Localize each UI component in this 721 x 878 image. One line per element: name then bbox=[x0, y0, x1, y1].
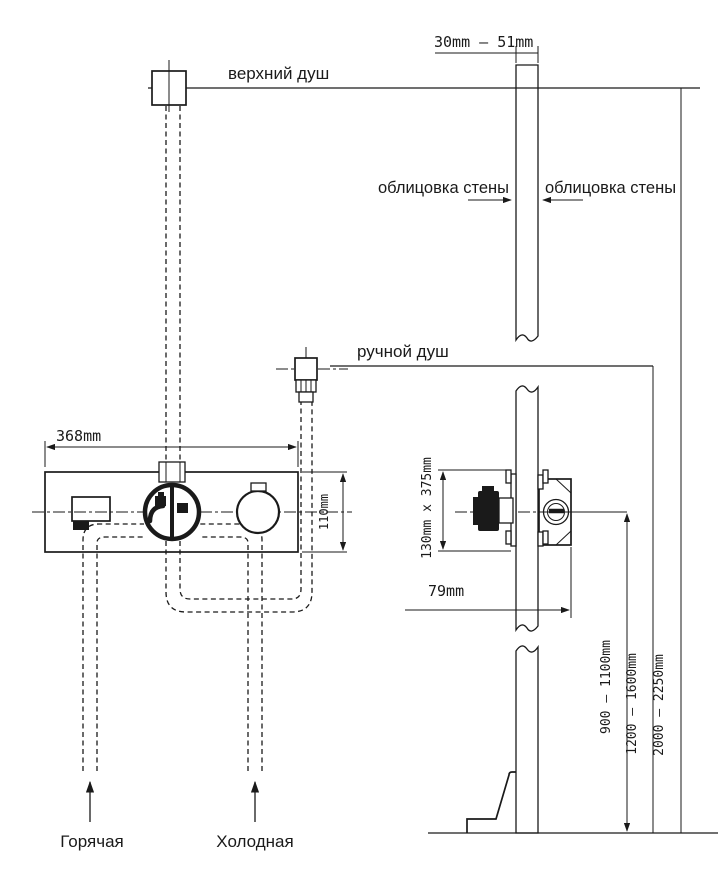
supply-callouts: Горячая Холодная bbox=[60, 782, 293, 851]
cold-pipe-run bbox=[200, 537, 248, 771]
mixer-front-view: 368mm 110m bbox=[32, 402, 352, 771]
overhead-shower: верхний душ bbox=[148, 60, 700, 462]
wall-section bbox=[516, 65, 538, 833]
recess-size-value: 130mm x 375mm bbox=[420, 457, 435, 559]
wall-thickness-dimension: 30mm — 51mm bbox=[434, 33, 538, 63]
mounting-stub-right bbox=[538, 475, 543, 489]
mixer-height-from-floor-dimension: 900 — 1100mm bbox=[563, 512, 627, 831]
hot-pipe-run bbox=[83, 524, 144, 771]
overhead-shower-height-value: 2000 — 2250mm bbox=[652, 654, 667, 756]
mounting-bolt bbox=[543, 470, 548, 483]
diverter-knob-icon bbox=[237, 491, 279, 533]
floor-and-tub bbox=[428, 772, 718, 833]
mixer-height-from-floor-value: 900 — 1100mm bbox=[599, 640, 614, 734]
hand-shower-height-value: 1200 — 1600mm bbox=[625, 653, 640, 755]
temperature-glyph bbox=[177, 503, 188, 513]
wall-cladding-left-label: облицовка стены bbox=[378, 179, 509, 197]
tub-edge-profile bbox=[467, 772, 516, 833]
mixer-width-dimension: 368mm bbox=[45, 427, 298, 467]
shower-installation-diagram: 30mm — 51mm верхний душ облицовка стены … bbox=[0, 0, 721, 878]
wall-thickness-value: 30mm — 51mm bbox=[434, 33, 533, 51]
mounting-bolt bbox=[543, 531, 548, 544]
mixer-width-value: 368mm bbox=[56, 427, 101, 445]
wall-cladding-callouts: облицовка стены облицовка стены bbox=[378, 179, 676, 200]
valve-body-back bbox=[473, 497, 478, 525]
wall-segment-upper bbox=[516, 65, 538, 341]
mounting-stub-right bbox=[538, 532, 543, 546]
hand-shower-label: ручной душ bbox=[357, 342, 449, 361]
recess-depth-value: 79mm bbox=[428, 582, 464, 600]
mixer-height-value: 110mm bbox=[317, 494, 331, 530]
hand-shower: ручной душ bbox=[276, 342, 653, 402]
mounting-bolt bbox=[506, 531, 511, 544]
spout-icon bbox=[72, 497, 110, 521]
overhead-shower-label: верхний душ bbox=[228, 64, 329, 83]
installation-diagram-page: { "labels": { "overhead_shower": "верхни… bbox=[0, 0, 721, 878]
hand-shower-height-dimension: 1200 — 1600mm bbox=[625, 366, 653, 833]
wall-cladding-right-label: облицовка стены bbox=[545, 179, 676, 197]
top-outlet-fitting bbox=[159, 462, 185, 482]
wall-segment-lower bbox=[516, 646, 538, 833]
mixer-side-view bbox=[455, 470, 624, 546]
hand-shower-outlet-icon bbox=[295, 358, 317, 380]
valve-body bbox=[478, 491, 499, 531]
valve-body-top bbox=[482, 486, 494, 491]
hot-supply-label: Горячая bbox=[60, 832, 124, 851]
hand-shower-nut bbox=[299, 392, 313, 402]
spout-aerator bbox=[73, 521, 89, 530]
wall-segment-middle bbox=[516, 386, 538, 631]
cold-pipe-run bbox=[200, 524, 262, 771]
tap-glyph-nub bbox=[158, 492, 164, 496]
valve-connector bbox=[499, 498, 513, 523]
cold-supply-label: Холодная bbox=[216, 832, 293, 851]
mounting-bolt bbox=[506, 470, 511, 483]
hot-pipe-run bbox=[97, 537, 144, 771]
overhead-shower-height-dimension: 2000 — 2250mm bbox=[652, 88, 681, 833]
diverter-knob-tab bbox=[251, 483, 266, 491]
